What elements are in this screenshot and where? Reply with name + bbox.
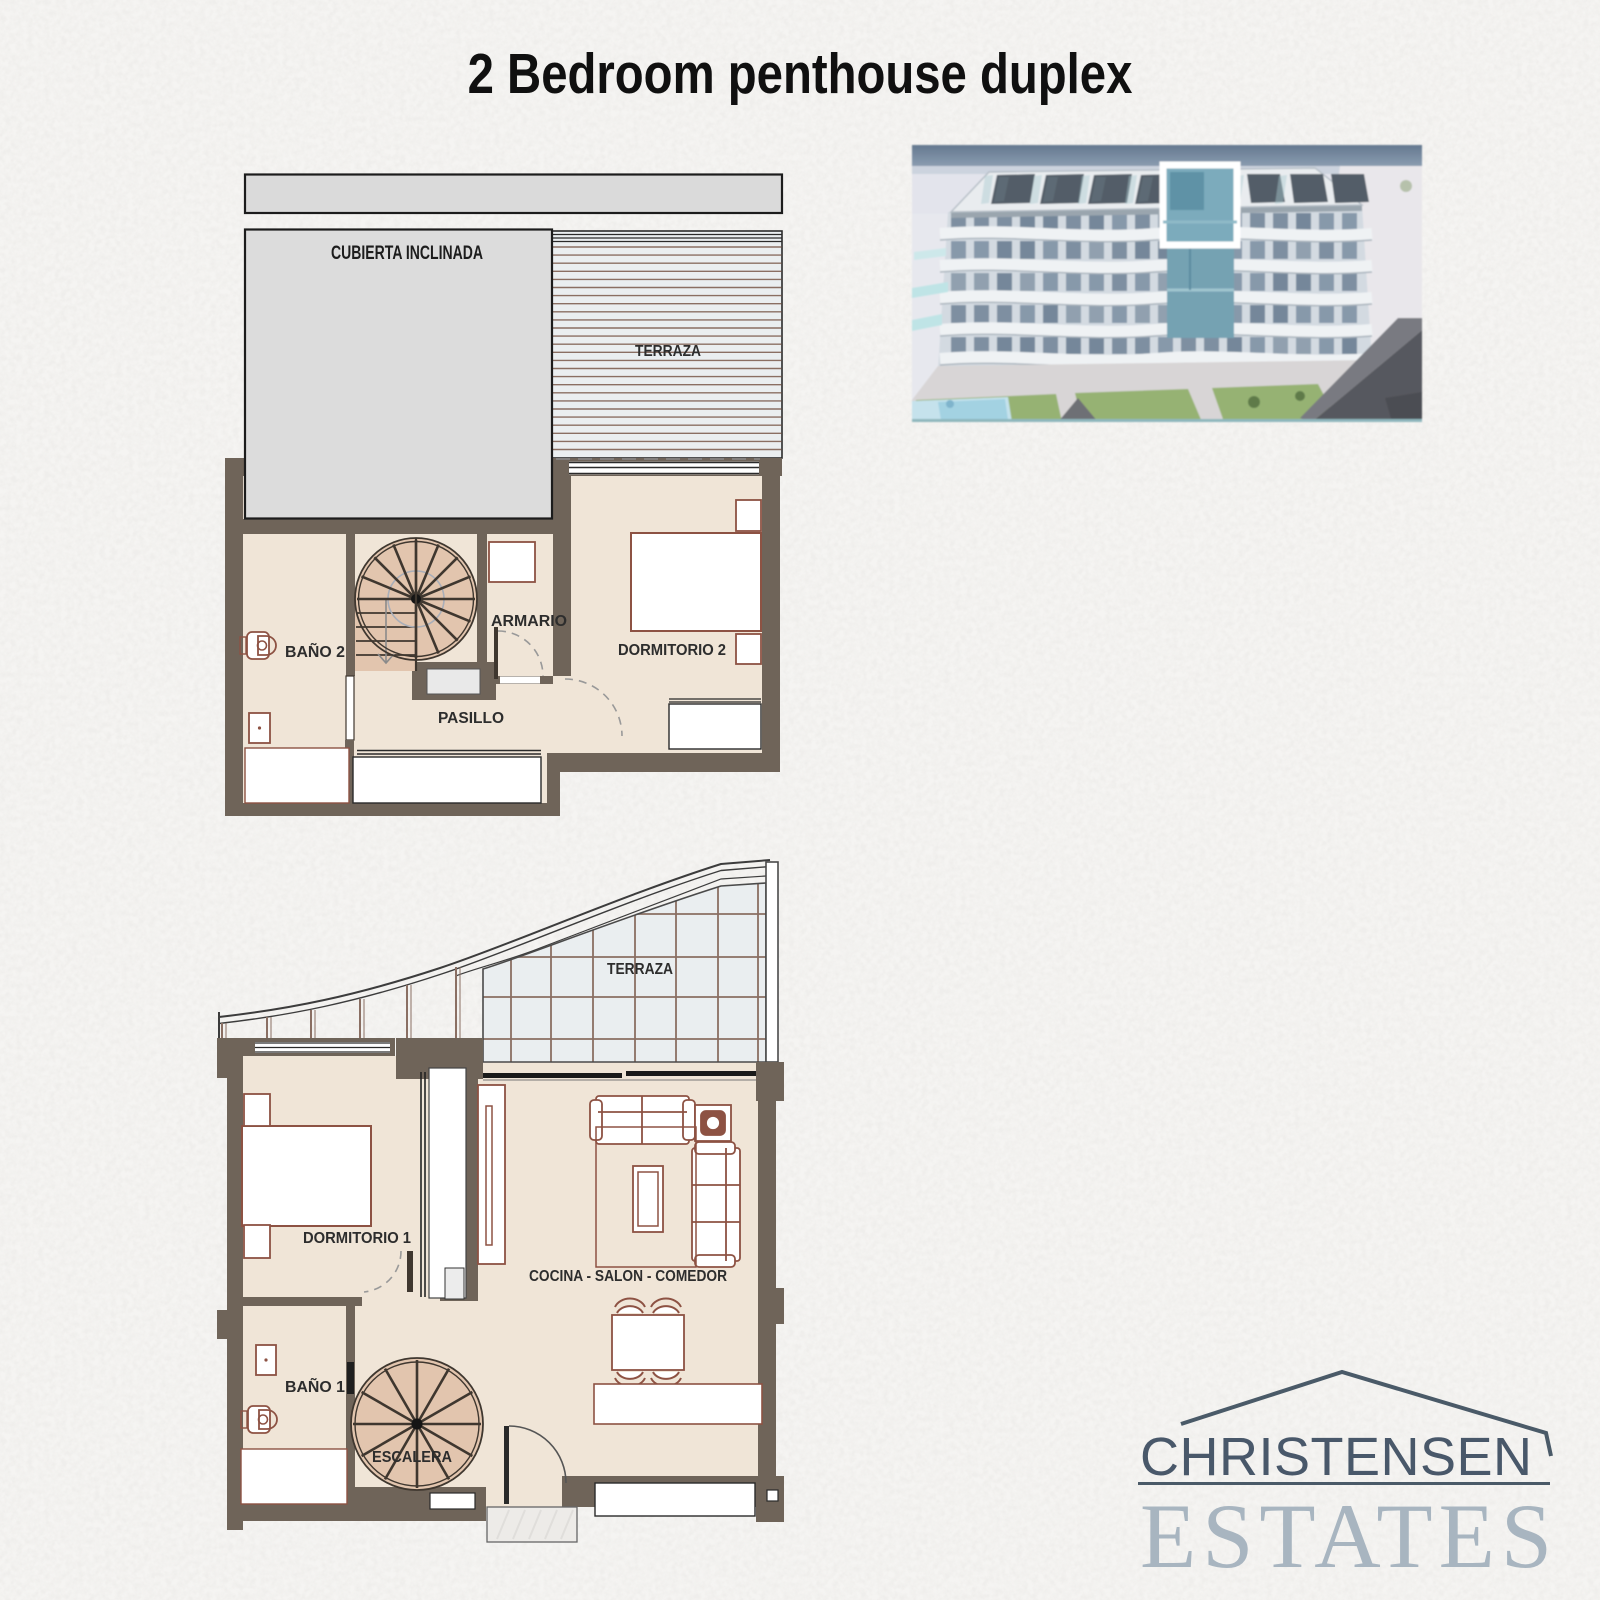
svg-text:2 Bedroom penthouse duplex: 2 Bedroom penthouse duplex bbox=[468, 43, 1133, 106]
svg-text:PASILLO: PASILLO bbox=[438, 710, 504, 727]
svg-text:COCINA - SALON - COMEDOR: COCINA - SALON - COMEDOR bbox=[529, 1268, 727, 1285]
svg-text:ESTATES: ESTATES bbox=[1140, 1485, 1558, 1587]
svg-text:DORMITORIO 2: DORMITORIO 2 bbox=[618, 642, 726, 659]
svg-text:ARMARIO: ARMARIO bbox=[491, 613, 567, 630]
svg-text:DORMITORIO 1: DORMITORIO 1 bbox=[303, 1230, 411, 1247]
svg-text:ESCALERA: ESCALERA bbox=[372, 1449, 452, 1466]
svg-text:CUBIERTA INCLINADA: CUBIERTA INCLINADA bbox=[331, 243, 483, 264]
svg-text:TERRAZA: TERRAZA bbox=[635, 343, 701, 360]
svg-text:CHRISTENSEN: CHRISTENSEN bbox=[1140, 1427, 1533, 1487]
svg-text:BAÑO 2: BAÑO 2 bbox=[285, 641, 345, 661]
svg-text:TERRAZA: TERRAZA bbox=[607, 961, 673, 978]
svg-text:BAÑO 1: BAÑO 1 bbox=[285, 1376, 345, 1396]
